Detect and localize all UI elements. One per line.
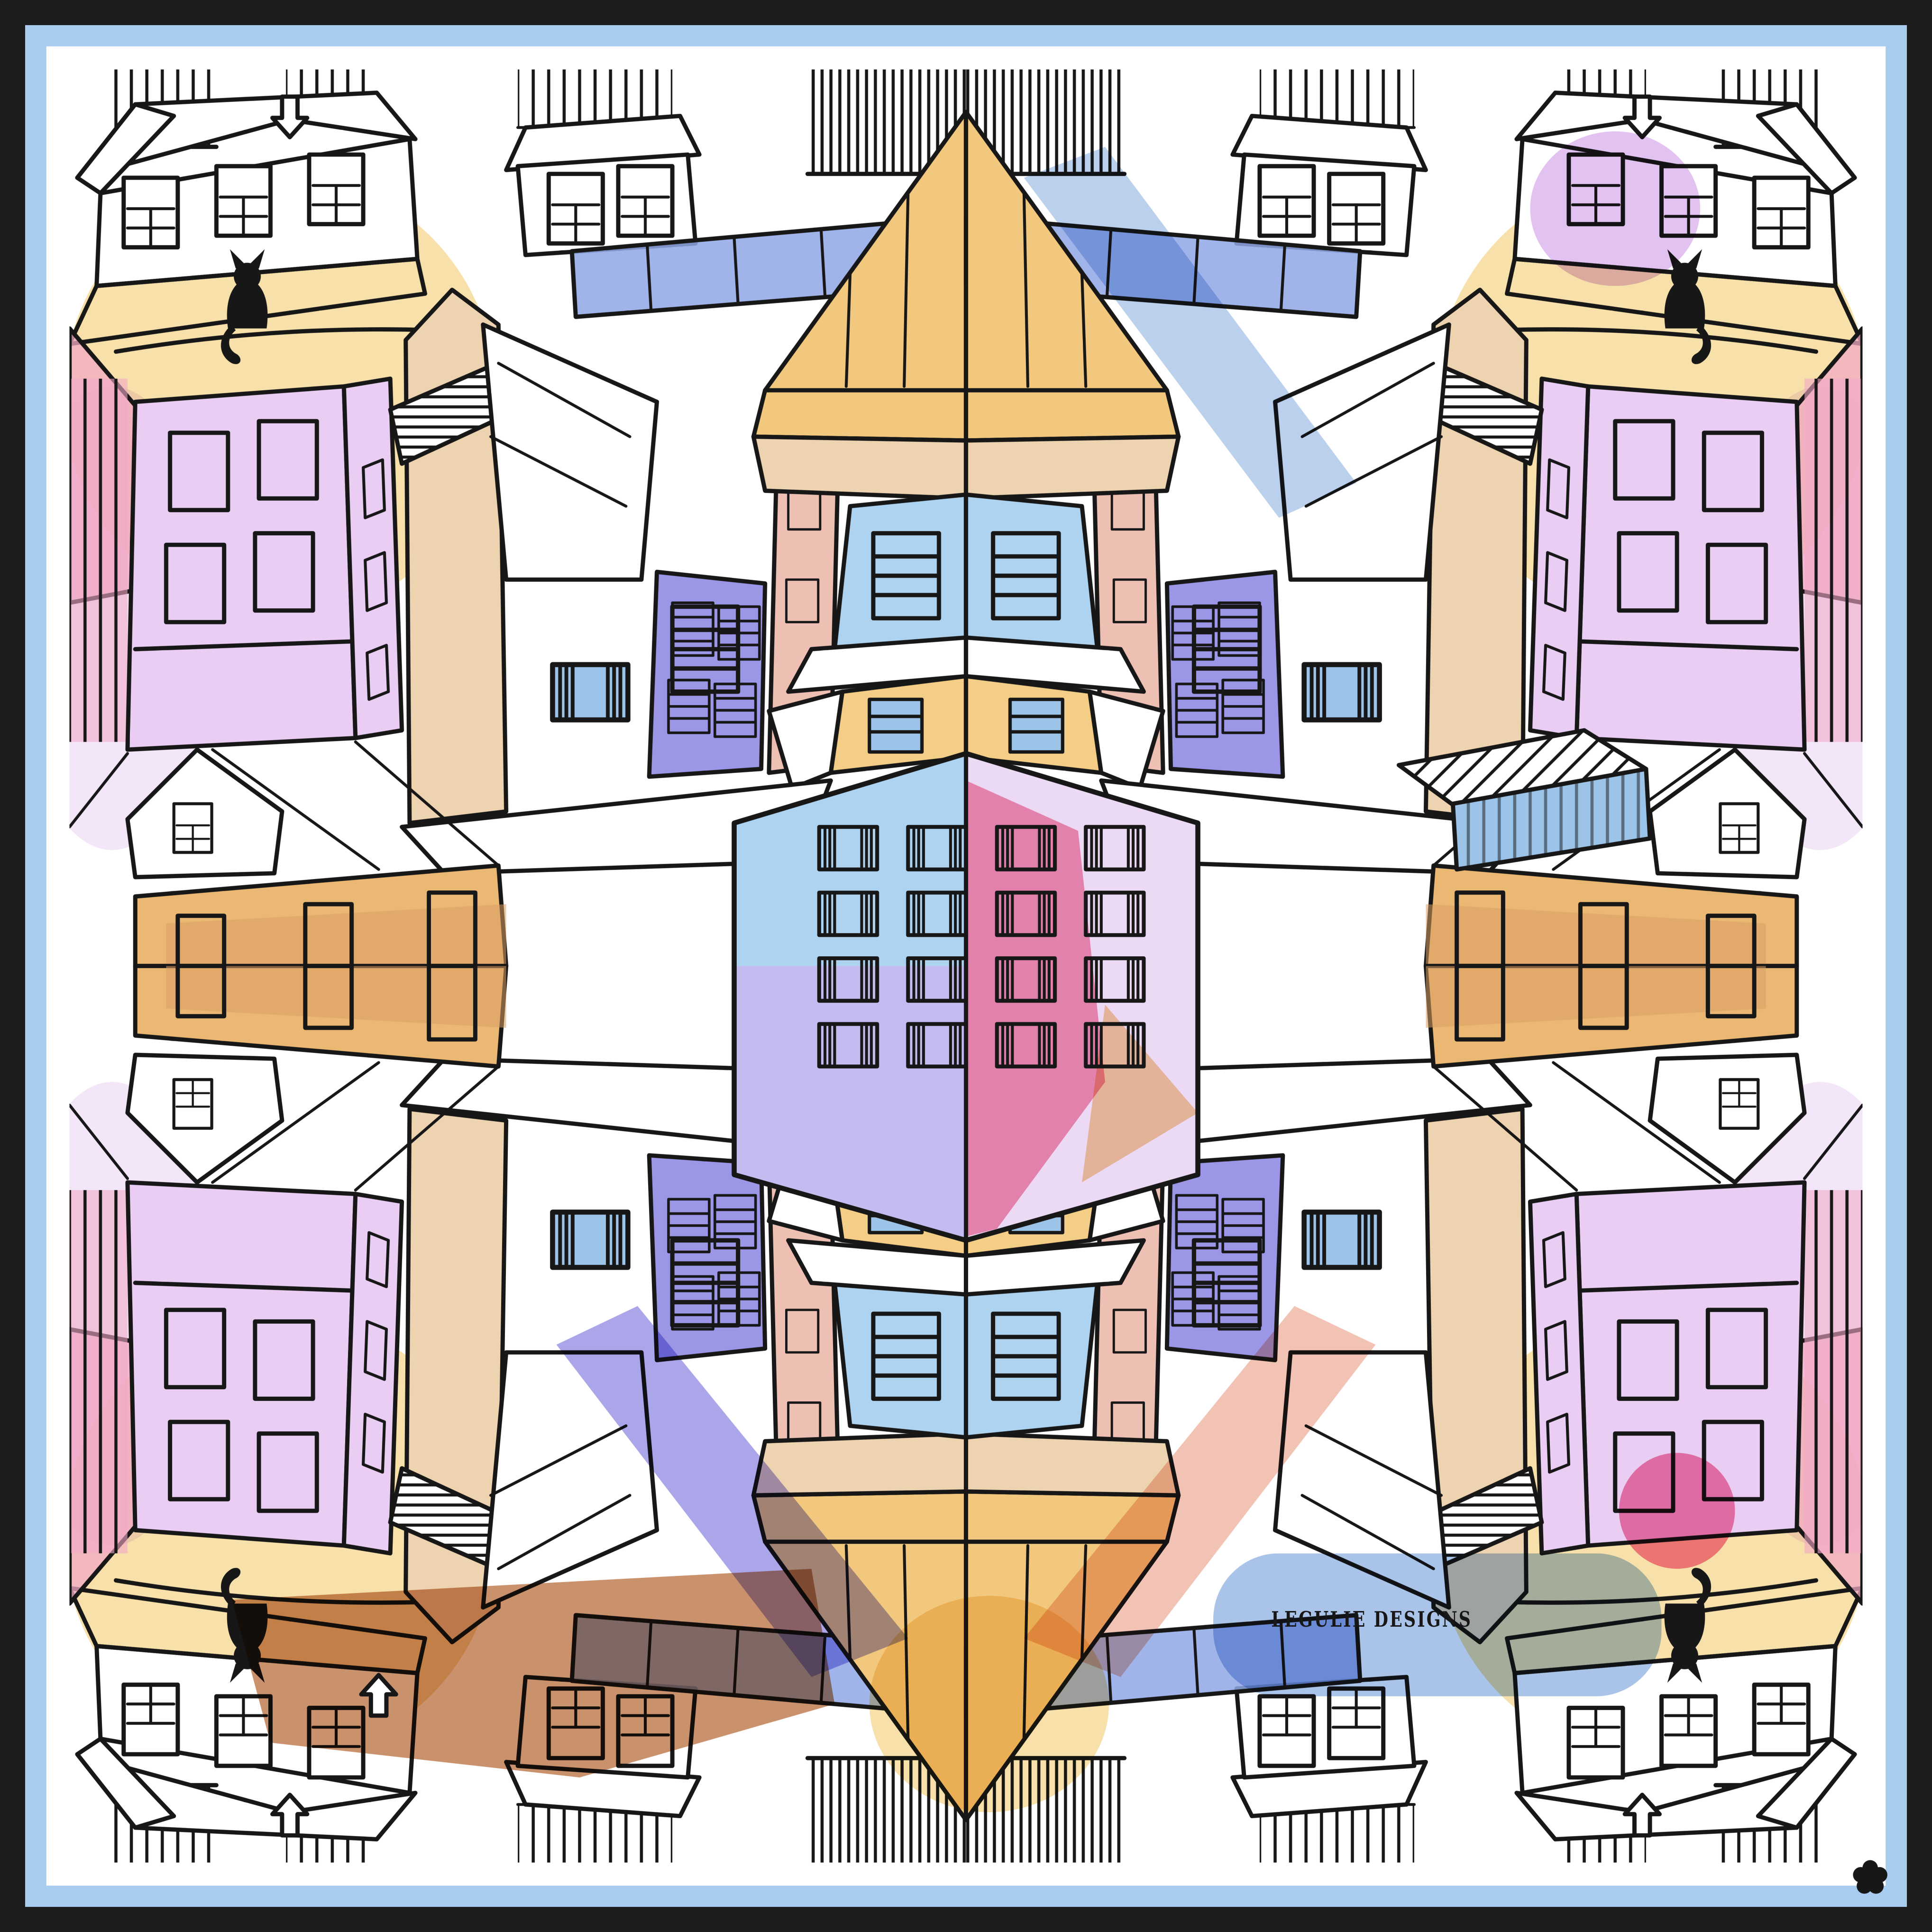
signature-block: LEGULIE DESIGNS <box>1213 1553 1661 1696</box>
signature-text: LEGULIE DESIGNS <box>1271 1607 1472 1632</box>
pattern-field: LEGULIE DESIGNS <box>11 70 1920 1863</box>
pink-circle-bottom-right <box>1619 1453 1735 1569</box>
lilac-blob-top-right <box>1530 131 1700 286</box>
scarf-illustration: LEGULIE DESIGNS <box>0 0 1932 1932</box>
scarf-svg: LEGULIE DESIGNS <box>0 0 1932 1932</box>
center-hexagon-house <box>734 753 1198 1240</box>
